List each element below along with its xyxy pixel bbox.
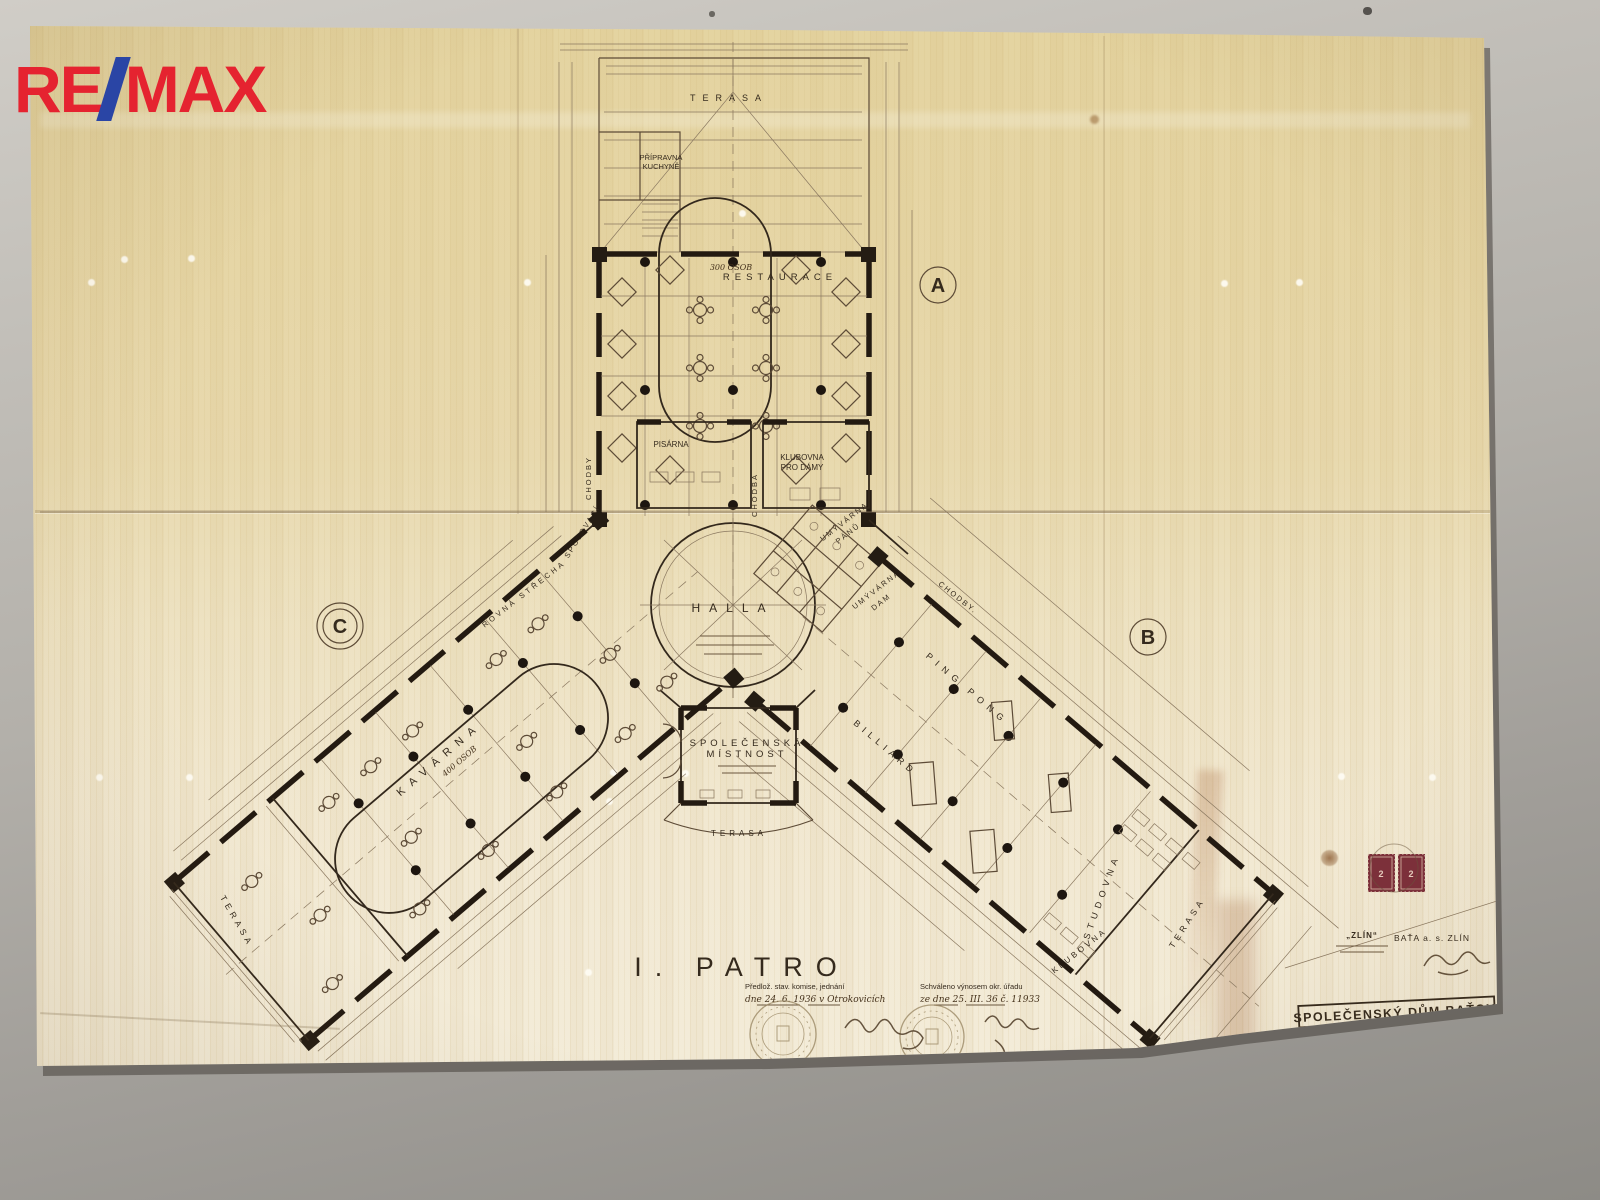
stamp-value: 2 (1408, 869, 1413, 879)
room-label-chodba: CHODBA (750, 473, 759, 517)
revenue-stamps: 2 2 (1368, 844, 1425, 892)
room-label-klubovna-2: PRO DÁMY (781, 463, 824, 472)
company-zlin: „ZLÍN“ (1346, 931, 1378, 940)
spolecenska-room-drawing: SPOLEČENSKÁ MÍSTNOST TERASA (663, 708, 813, 838)
capacity-restaurace: 300 OSOB (710, 263, 752, 272)
stamp-value: 2 (1378, 869, 1383, 879)
room-label-pripravna-1: PŘÍPRAVNA (640, 153, 683, 162)
room-label-ping-pong: PING PONG (924, 651, 1010, 727)
ink-stamp-round (750, 1001, 816, 1067)
room-label-klubovna-1: KLUBOVNA (780, 453, 824, 462)
remax-re: RE (14, 56, 102, 122)
room-label-spolecenska-2: MÍSTNOST (706, 749, 787, 760)
room-label-terasa-b: TERASA (1167, 896, 1207, 950)
approval-left-line2: dne 24. 6. 1936 v Otrokovicích (745, 994, 885, 1005)
svg-text:C: C (333, 616, 347, 638)
remax-max: MAX (125, 56, 266, 122)
company-line: „ZLÍN“ BAŤA a. s. ZLÍN (1285, 900, 1500, 975)
wing-letter-a: A (920, 267, 956, 303)
room-label-billiard: BILLIARD (852, 718, 919, 778)
photo-scene: TERASA PŘÍPRAVNA KUCHYNĚ 300 OSOB RESTAU… (0, 0, 1600, 1200)
wing-letter-b: B (1130, 619, 1166, 655)
remax-watermark: RE MAX (14, 56, 265, 122)
room-label-chodby-left: CHODBY (584, 456, 593, 500)
room-label-pripravna-2: KUCHYNĚ (643, 162, 680, 171)
approval-left-line1: Předlož. stav. komise, jednání (745, 982, 845, 991)
wall-tack (1363, 7, 1372, 15)
wing-c-drawing: KAVÁRNA 400 OSOB TERASA (133, 462, 793, 1085)
signature-scribble (1424, 952, 1490, 975)
svg-text:A: A (931, 275, 945, 297)
svg-text:B: B (1141, 627, 1155, 649)
room-label-restaurace: RESTAURACE (723, 272, 837, 283)
room-label-halla: HALLA (691, 601, 774, 615)
floor-title: I. PATRO (634, 952, 850, 982)
approval-right-line1: Schváleno výnosem okr. úřadu (920, 982, 1023, 991)
room-label-spolecenska-1: SPOLEČENSKÁ (690, 738, 805, 749)
room-label-klubovna-b: KLUBOVNA (1050, 927, 1109, 976)
hub-drawing: HALLA UMÝVÁRNA PÁNŮ UMÝVÁRNA DAM CHODBY.… (40, 500, 1470, 708)
company-bata: BAŤA a. s. ZLÍN (1394, 933, 1470, 943)
signature-scribble (845, 1019, 923, 1048)
approval-right-line2: ze dne 25. III. 36 č. 11933 (919, 994, 1040, 1005)
room-label-pisarna: PISÁRNA (653, 440, 689, 449)
wall-tack (709, 11, 715, 17)
wing-letter-c: C (317, 603, 363, 649)
room-label-terasa-mid: TERASA (711, 829, 767, 838)
room-label-terasa-top: TERASA (690, 93, 768, 103)
